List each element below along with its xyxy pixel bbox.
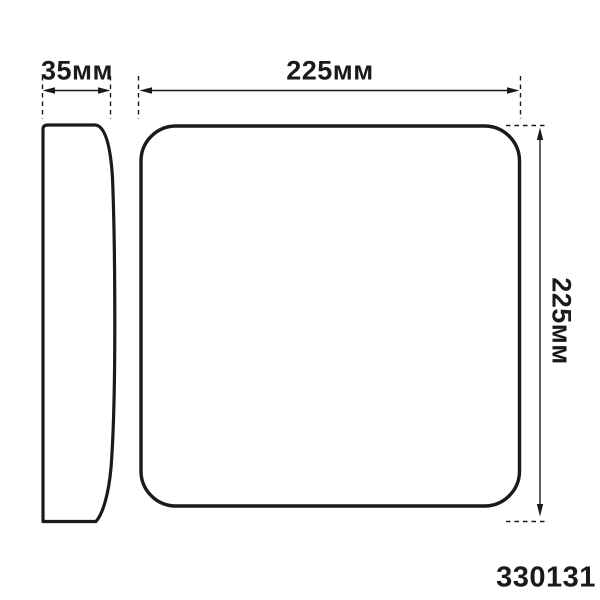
arrowhead-right-icon [507, 87, 520, 94]
technical-drawing-canvas: 35мм 225мм 225мм 330131 [0, 0, 600, 600]
arrowhead-top-icon [537, 128, 543, 141]
side-profile-outline [43, 125, 115, 522]
arrowhead-left-icon [43, 87, 56, 94]
arrowhead-left-icon [140, 87, 153, 94]
front-width-dim-label: 225мм [286, 56, 374, 87]
arrowhead-bottom-icon [537, 504, 543, 517]
arrowhead-right-icon [98, 87, 111, 94]
front-height-dim-label: 225мм [546, 277, 577, 365]
dimension-drawing [0, 0, 600, 600]
front-height-dimension [506, 126, 547, 522]
part-number: 330131 [496, 562, 596, 595]
front-view-outline [141, 126, 520, 506]
side-width-dim-label: 35мм [41, 56, 113, 87]
